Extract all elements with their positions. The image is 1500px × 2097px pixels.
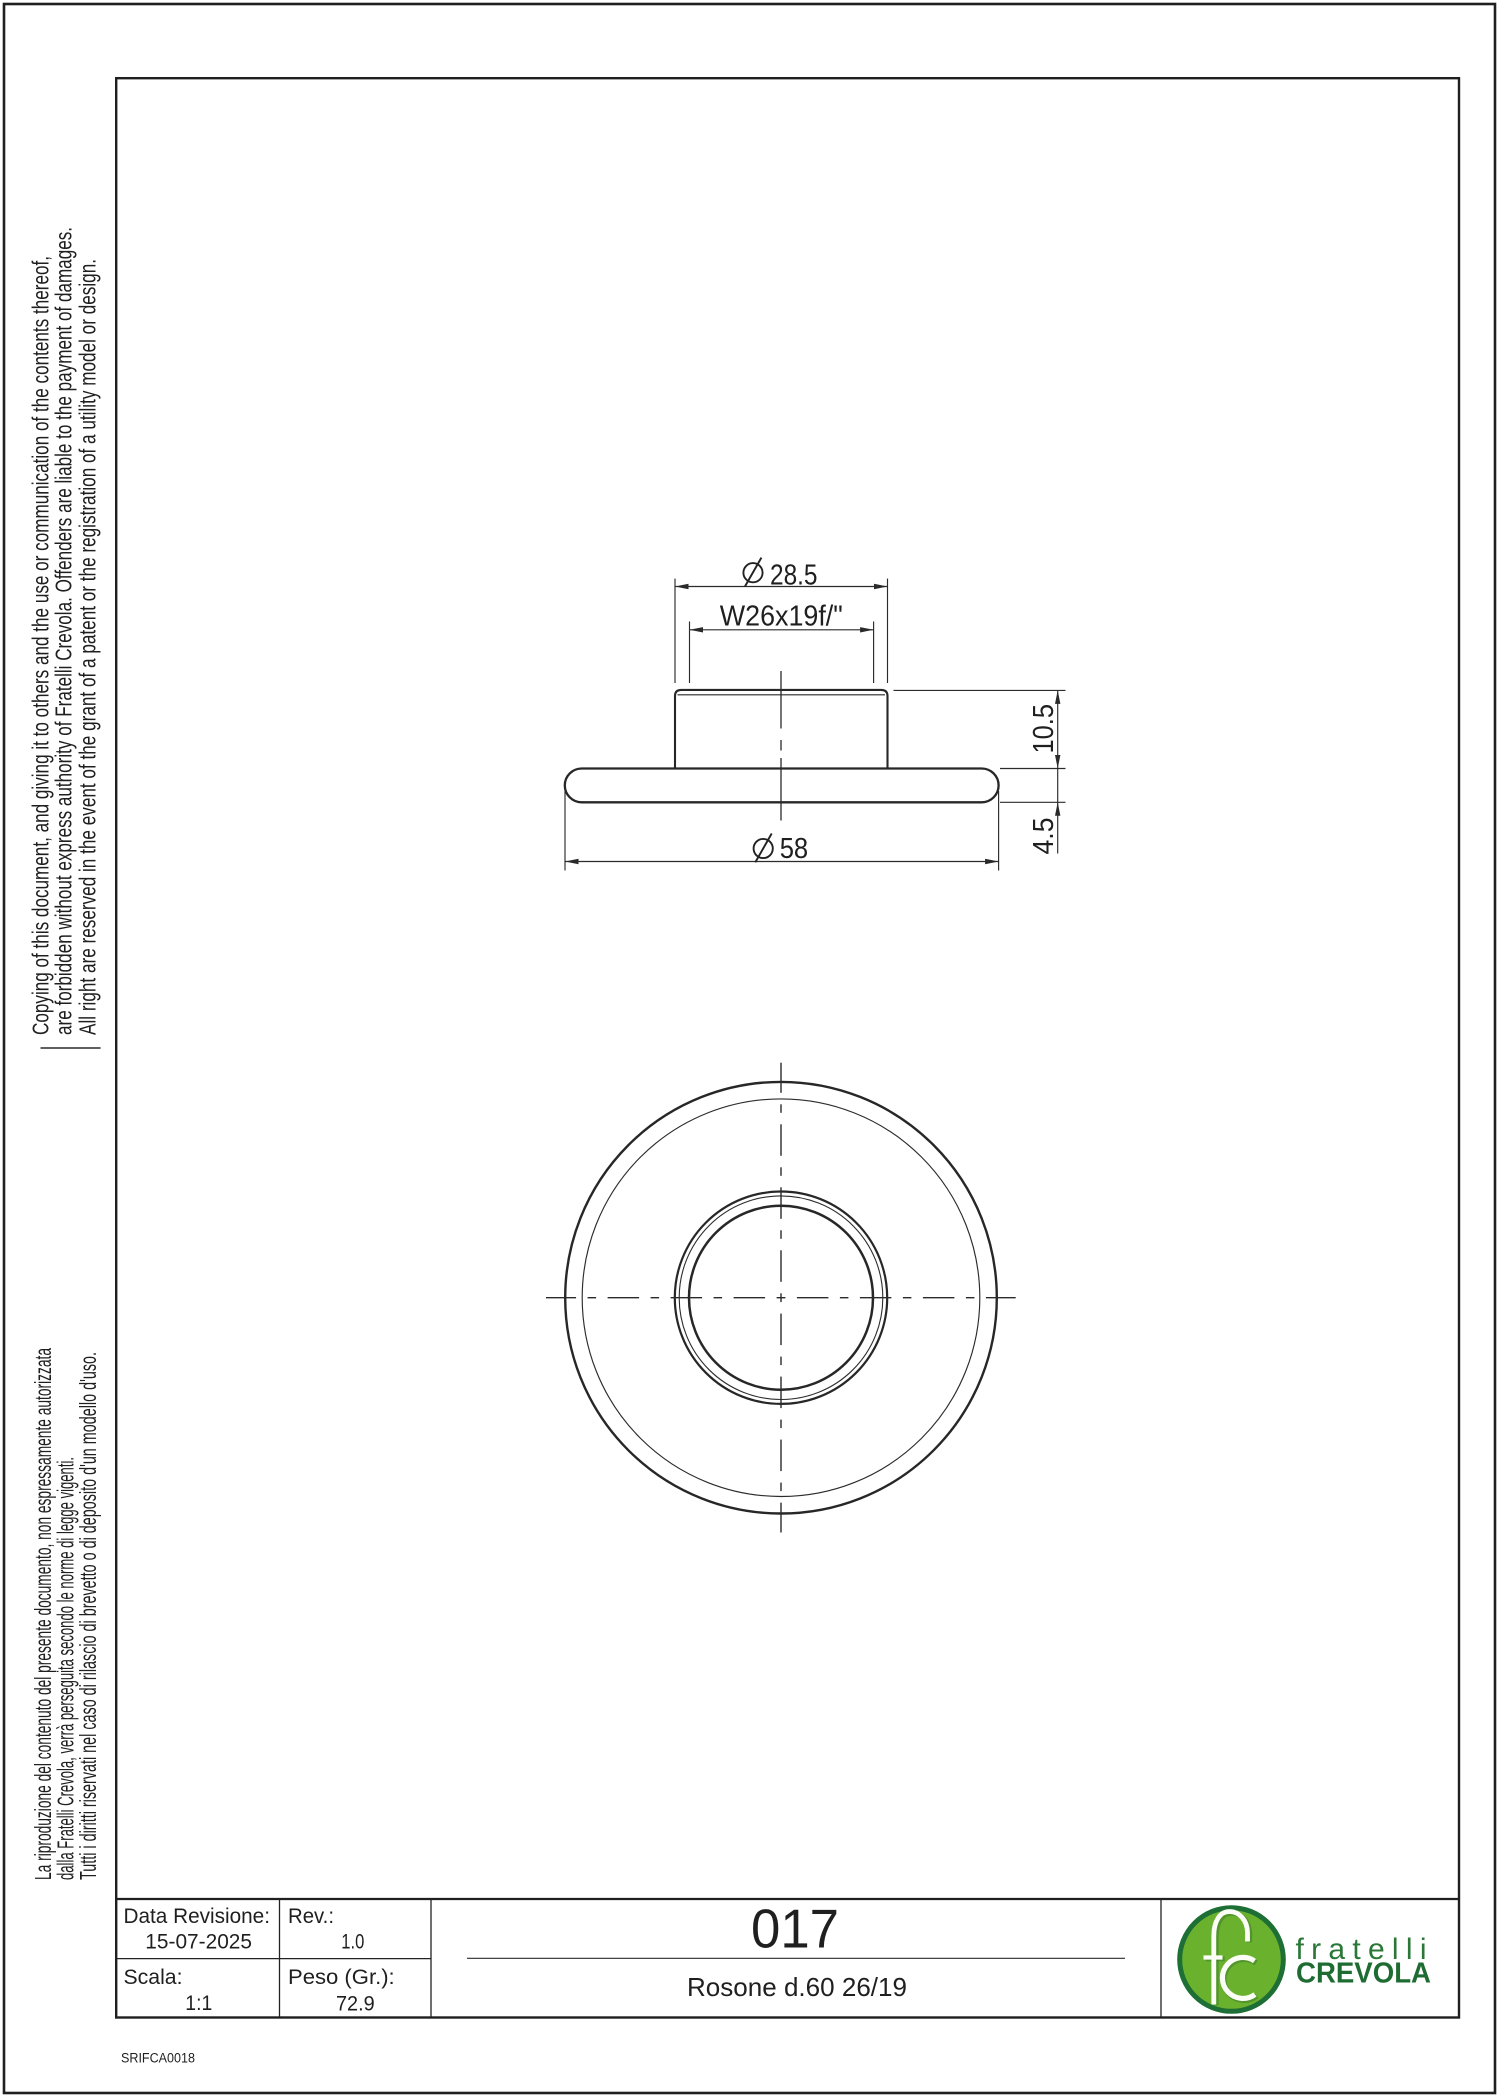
svg-text:15-07-2025: 15-07-2025 [145, 1930, 252, 1954]
svg-text:58: 58 [780, 833, 809, 865]
svg-text:Peso (Gr.):: Peso (Gr.): [288, 1965, 395, 1989]
svg-text:Scala:: Scala: [124, 1965, 183, 1989]
svg-text:017: 017 [751, 1898, 839, 1960]
svg-text:1:1: 1:1 [185, 1991, 212, 2015]
svg-text:72.9: 72.9 [336, 1992, 375, 2016]
svg-text:All right are reserved in the: All right are reserved in the event of t… [75, 259, 101, 1035]
svg-text:Rosone d.60 26/19: Rosone d.60 26/19 [687, 1972, 907, 2002]
svg-text:Rev.:: Rev.: [288, 1904, 334, 1928]
svg-text:10.5: 10.5 [1028, 704, 1060, 754]
svg-text:CREVOLA: CREVOLA [1296, 1958, 1431, 1990]
svg-text:1.0: 1.0 [341, 1930, 364, 1954]
svg-text:28.5: 28.5 [770, 559, 818, 591]
svg-text:Data Revisione:: Data Revisione: [124, 1904, 271, 1928]
svg-text:are forbidden without express: are forbidden without express authority … [50, 227, 76, 1035]
svg-text:W26x19f/": W26x19f/" [720, 600, 843, 632]
svg-text:4.5: 4.5 [1028, 818, 1060, 855]
svg-text:Tutti i diritti riservati nel: Tutti i diritti riservati nel caso di ri… [75, 1352, 101, 1880]
svg-text:SRIFCA0018: SRIFCA0018 [121, 2051, 195, 2066]
